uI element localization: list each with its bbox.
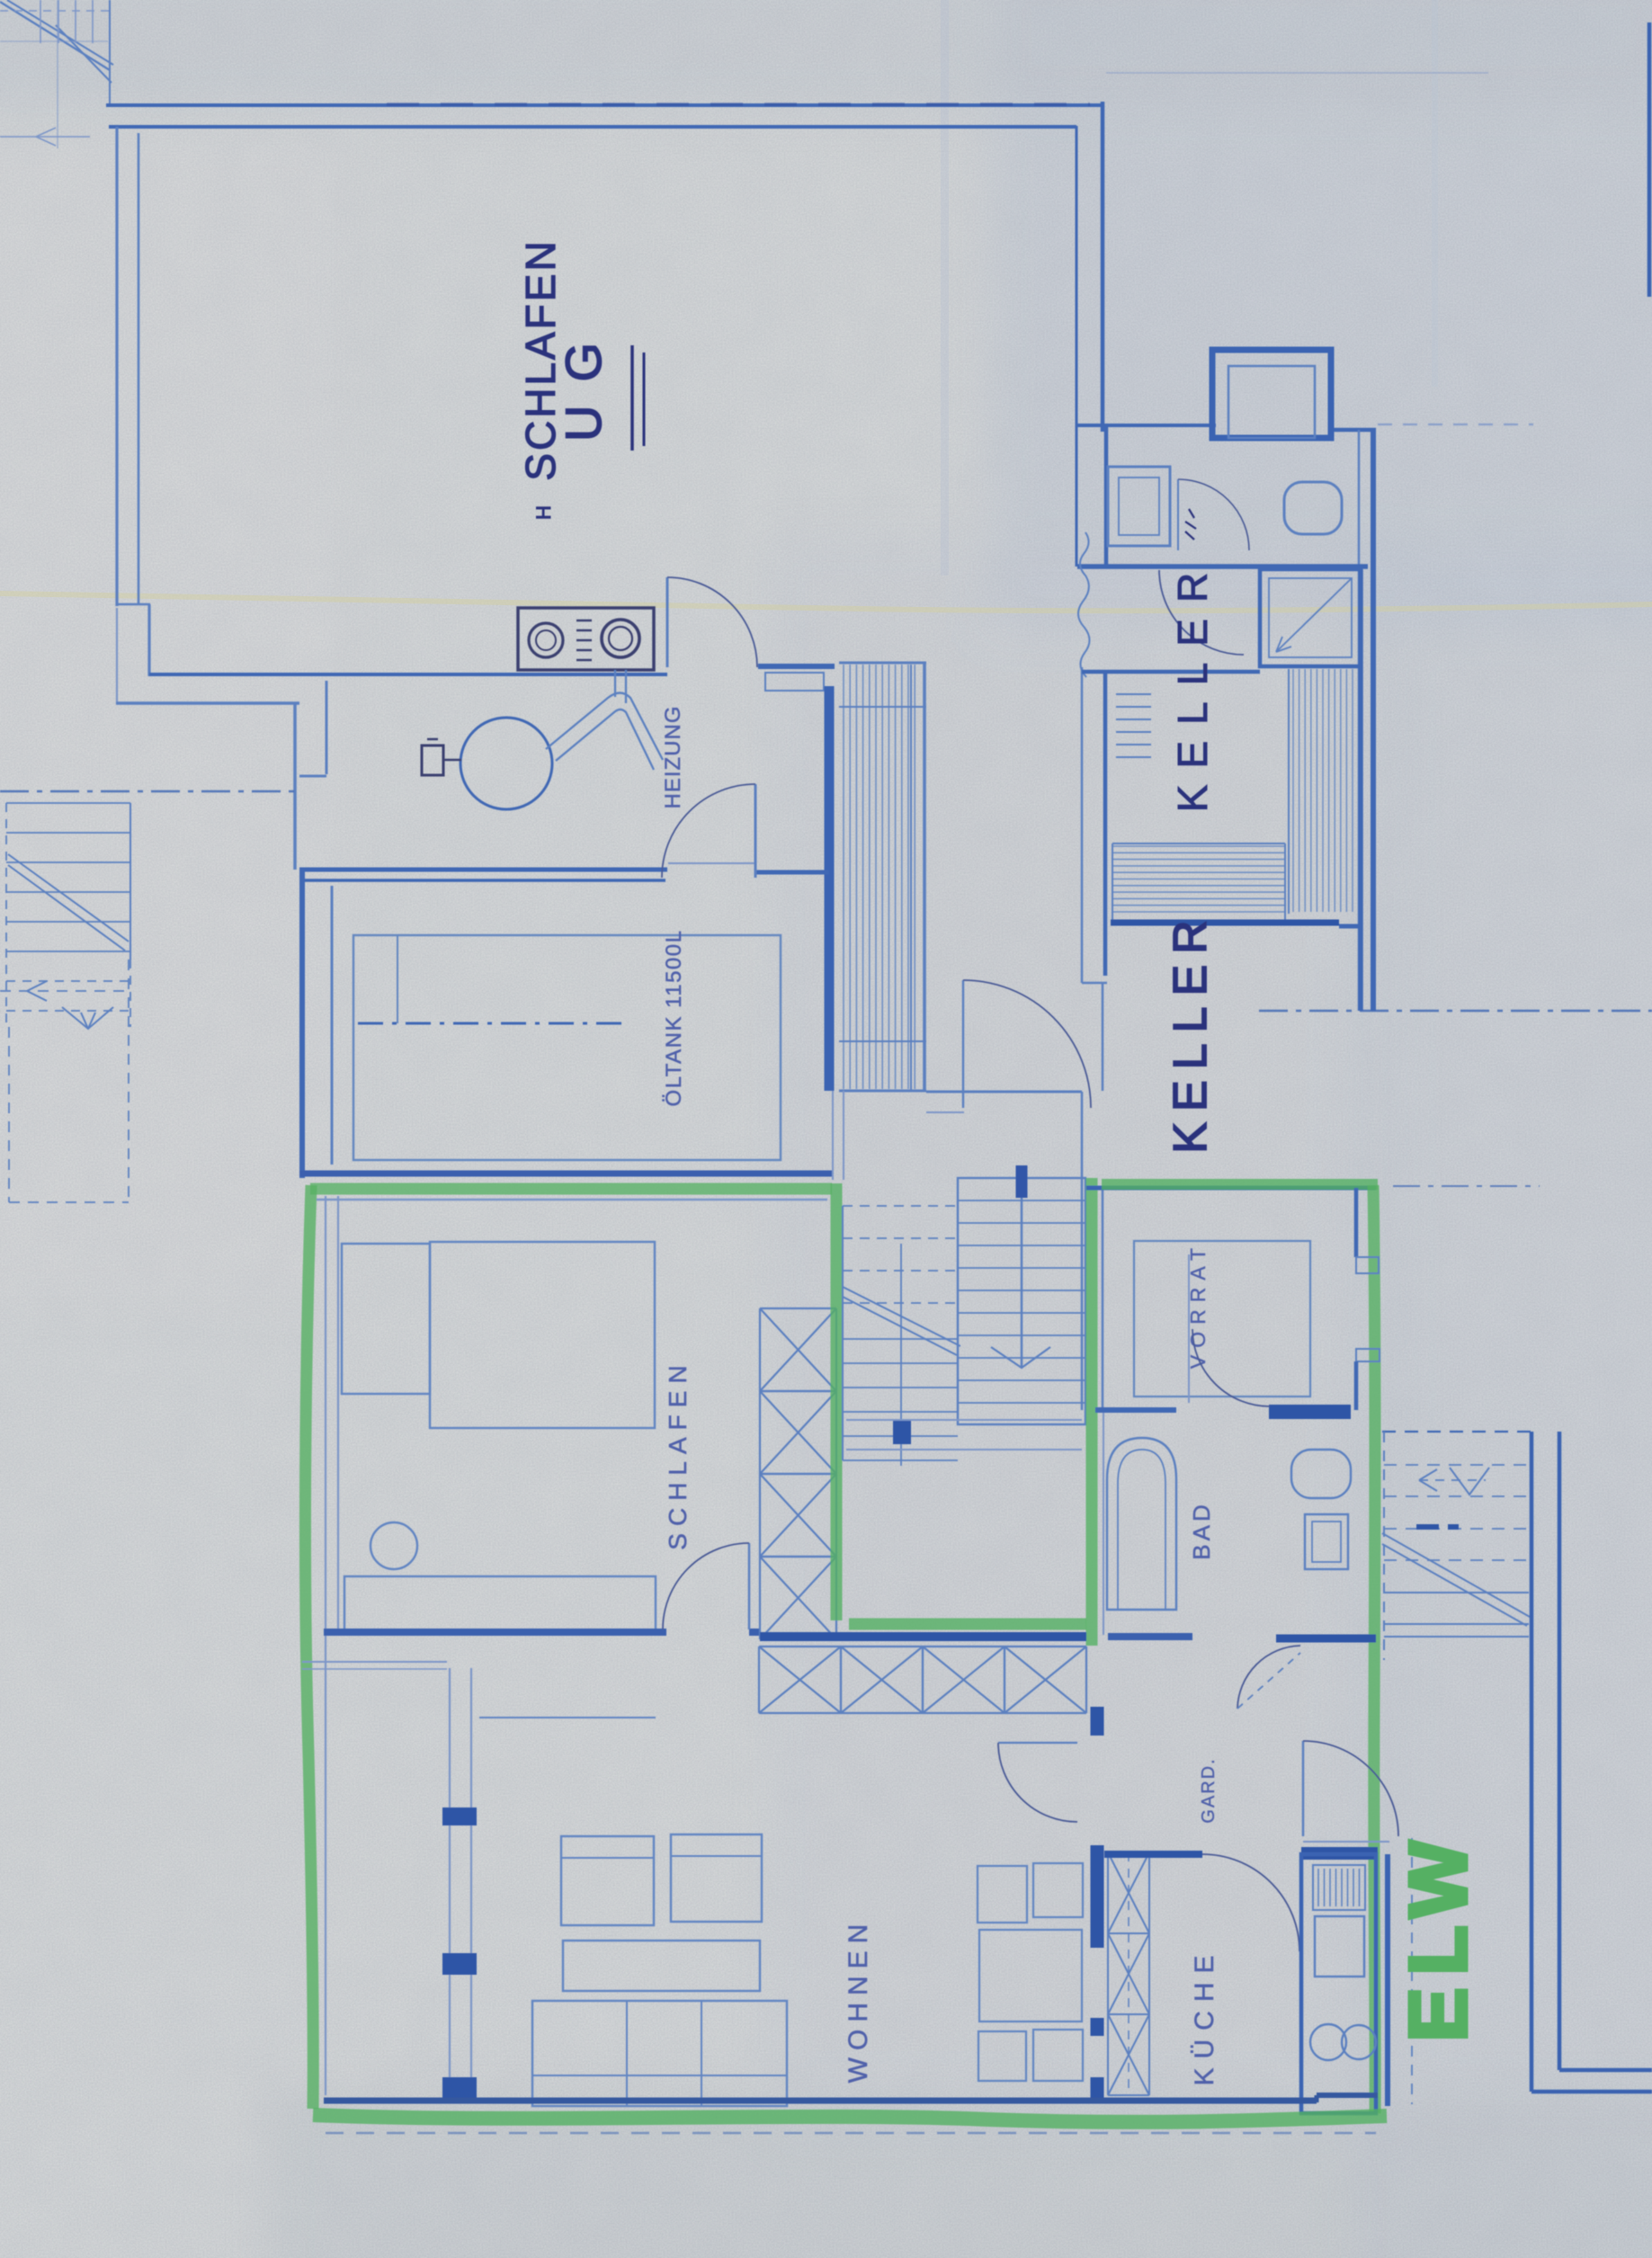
svg-text:BAD: BAD bbox=[1188, 1501, 1215, 1559]
svg-text:HEIZUNG: HEIZUNG bbox=[661, 706, 685, 809]
svg-text:WOHNEN: WOHNEN bbox=[844, 1917, 873, 2084]
svg-text:UG: UG bbox=[555, 319, 612, 442]
svg-text:GARD.: GARD. bbox=[1199, 1757, 1219, 1823]
svg-text:ELW: ELW bbox=[1394, 1829, 1484, 2042]
svg-text:H: H bbox=[532, 505, 555, 520]
svg-text:KELLER: KELLER bbox=[1165, 909, 1217, 1153]
svg-text:KELLER: KELLER bbox=[1169, 557, 1216, 812]
svg-text:KÜCHE: KÜCHE bbox=[1190, 1946, 1219, 2085]
svg-text:ÖLTANK 11500L: ÖLTANK 11500L bbox=[662, 930, 686, 1107]
svg-text:SCHLAFEN: SCHLAFEN bbox=[664, 1358, 692, 1549]
